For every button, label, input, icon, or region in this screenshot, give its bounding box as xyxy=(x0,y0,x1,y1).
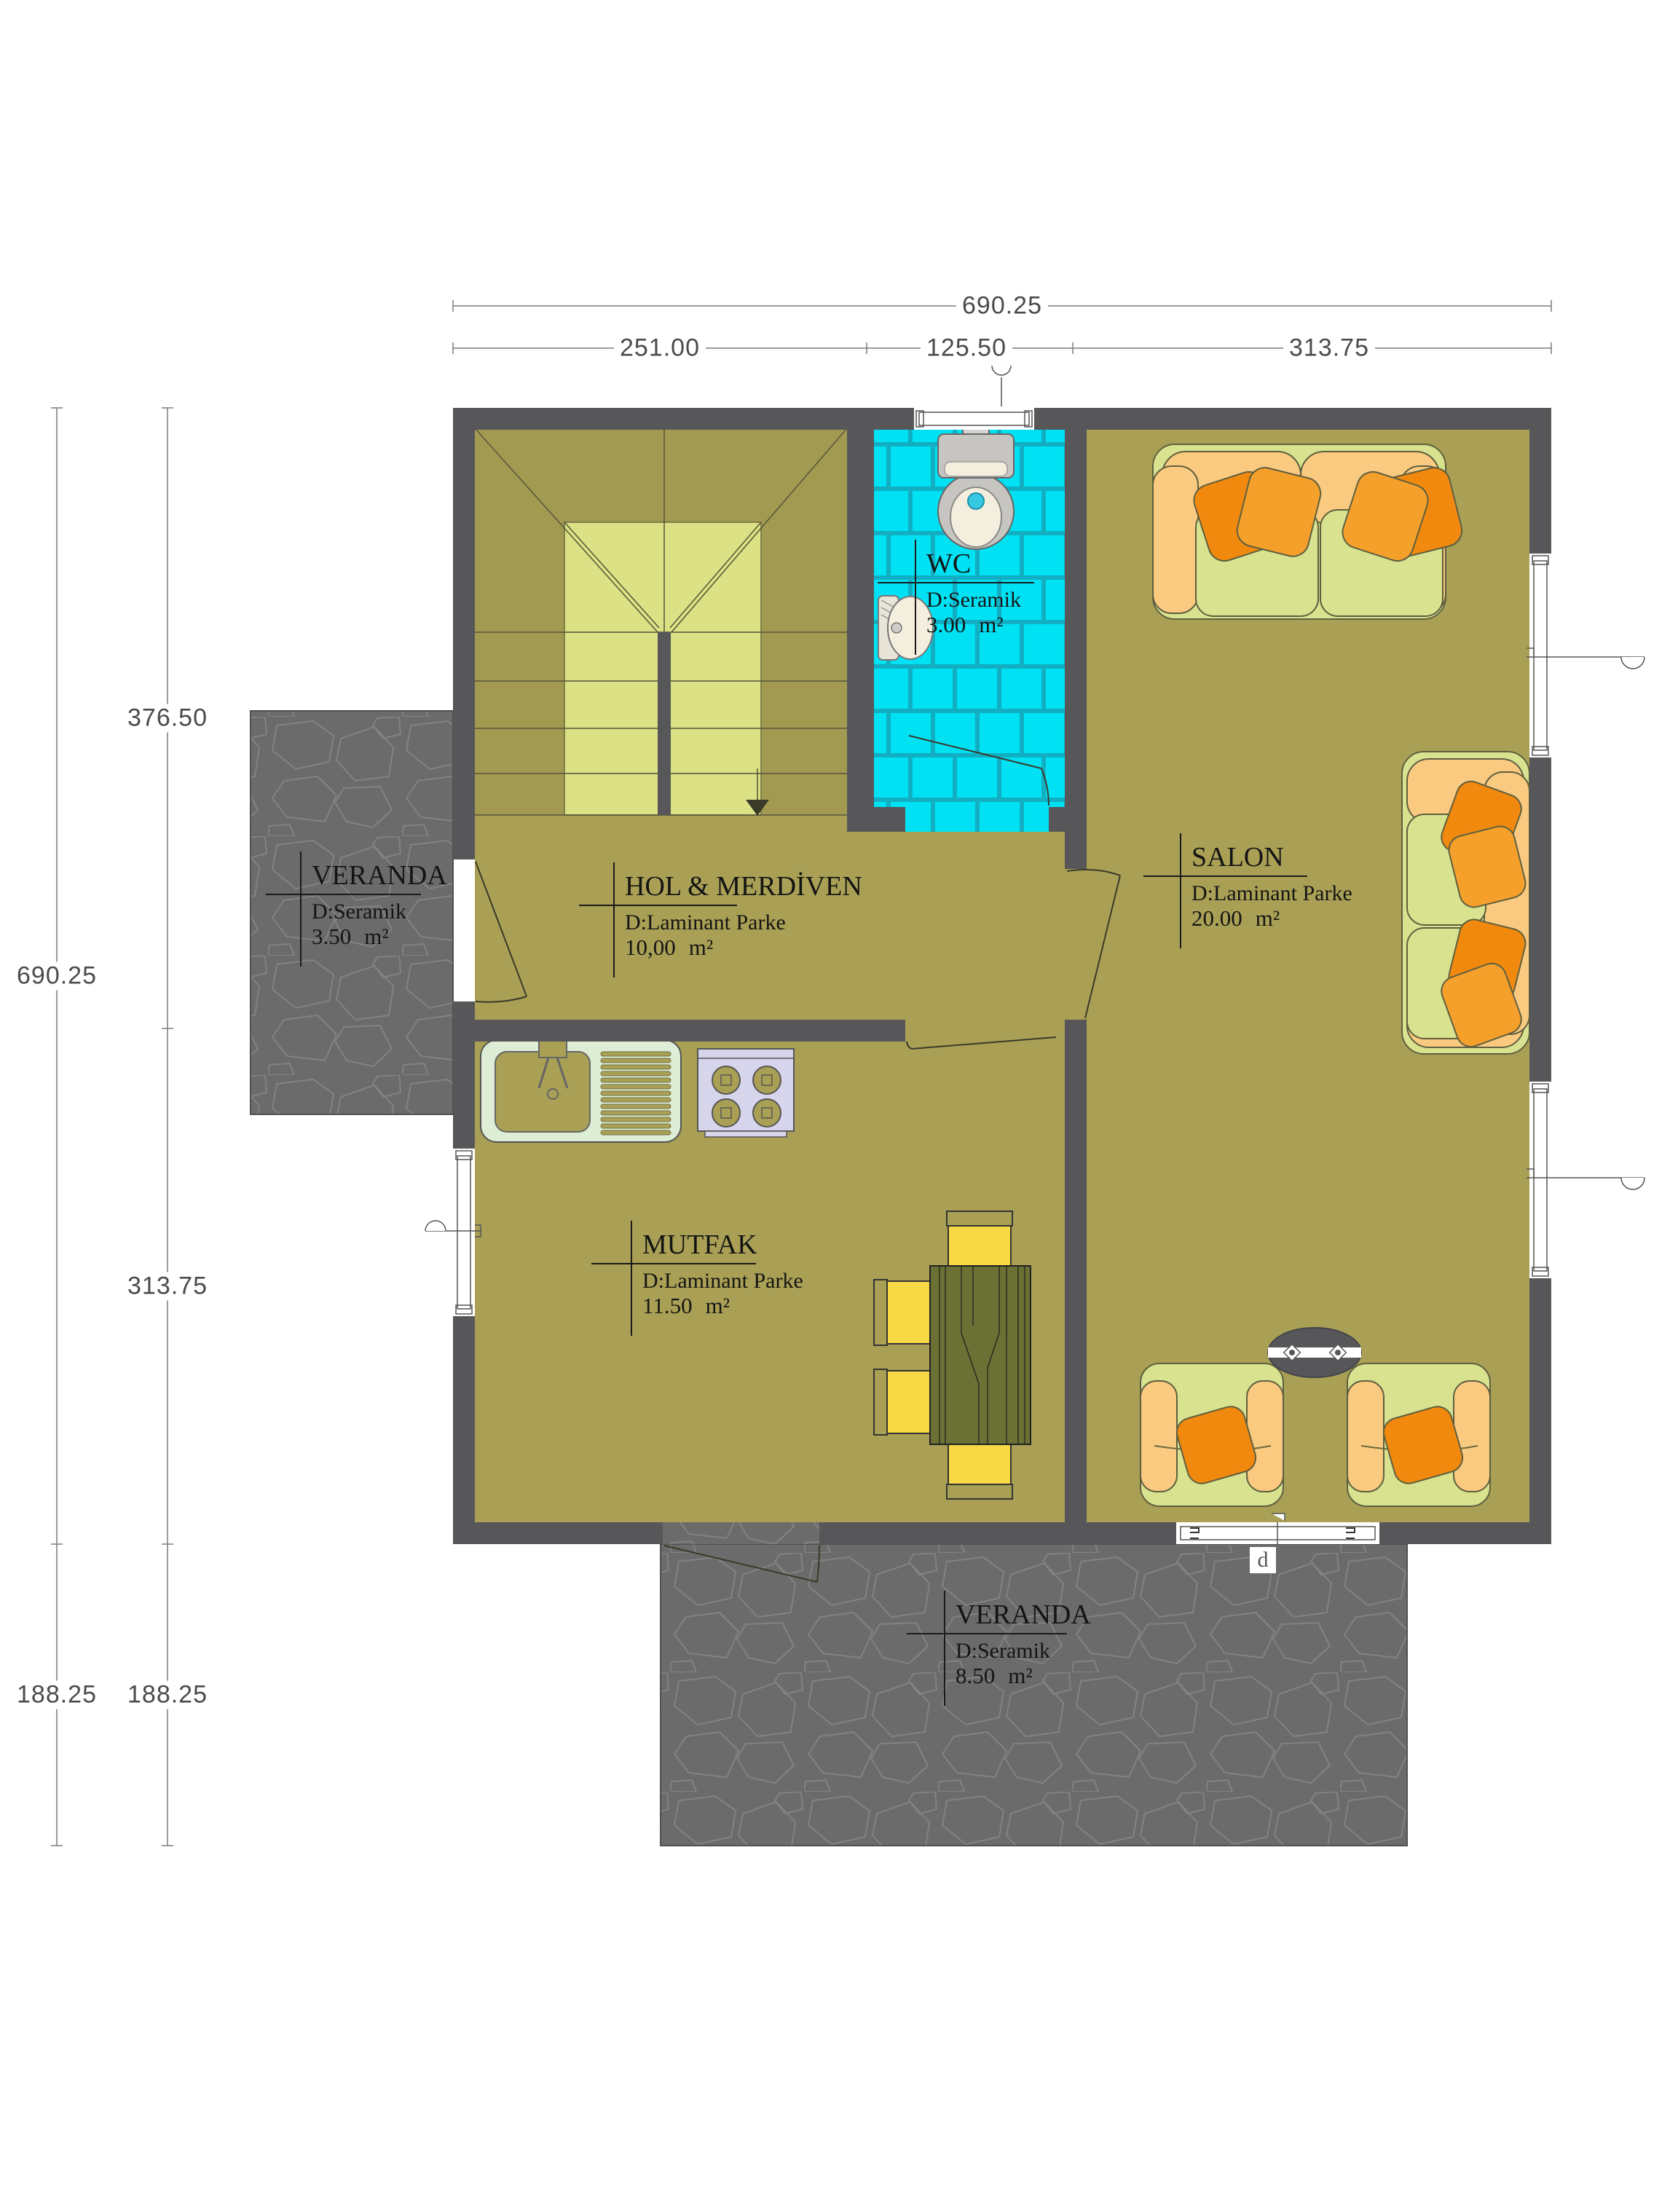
room-label-salon: SALON D:Laminant Parke 20.00m² xyxy=(1178,843,1352,932)
room-area: 10,00m² xyxy=(612,934,862,961)
room-floor-type: D:Seramik xyxy=(942,1639,1091,1663)
room-label-veranda-left: VERANDA D:Seramik 3.50m² xyxy=(299,862,447,950)
room-label-veranda-bottom: VERANDA D:Seramik 8.50m² xyxy=(942,1601,1091,1689)
armchair-symbol xyxy=(1141,1363,1283,1506)
floor-plan-drawing xyxy=(0,0,1678,2212)
door-tag: d xyxy=(1250,1547,1276,1573)
label-tick xyxy=(944,1591,945,1706)
room-area: 3.00m² xyxy=(913,612,1034,638)
room-area: 3.50m² xyxy=(299,924,447,950)
dim-top-seg-1: 251.00 xyxy=(614,334,706,363)
room-label-mutfak: MUTFAK D:Laminant Parke 11.50m² xyxy=(629,1231,803,1319)
room-name: VERANDA xyxy=(942,1601,1091,1630)
label-tick xyxy=(300,851,302,967)
staircase-symbol xyxy=(475,428,847,816)
label-tick xyxy=(915,540,916,655)
window-symbol xyxy=(425,1149,481,1316)
floor-plan-canvas: 690.25 251.00 125.50 313.75 690.25 188.2… xyxy=(0,0,1678,2212)
coffee-table-symbol xyxy=(1268,1328,1361,1377)
room-area: 8.50m² xyxy=(942,1663,1091,1689)
room-label-wc: WC D:Seramik 3.00m² xyxy=(913,550,1034,638)
dim-left-inner-3: 188.25 xyxy=(122,1681,213,1709)
stove-symbol xyxy=(698,1049,794,1137)
window-symbol xyxy=(1527,1082,1644,1278)
room-label-hol: HOL & MERDİVEN D:Laminant Parke 10,00m² xyxy=(612,873,862,961)
window-symbol xyxy=(914,366,1034,430)
window-symbol xyxy=(1527,554,1644,757)
label-tick xyxy=(631,1221,632,1336)
room-area: 20.00m² xyxy=(1178,905,1352,932)
room-floor-type: D:Laminant Parke xyxy=(612,910,862,934)
label-tick xyxy=(613,862,615,977)
room-floor-type: D:Seramik xyxy=(299,900,447,924)
dim-top-total: 690.25 xyxy=(956,292,1048,320)
sofa-right-symbol xyxy=(1402,752,1529,1054)
room-name: MUTFAK xyxy=(629,1231,803,1260)
room-name: WC xyxy=(913,550,1034,579)
room-floor-type: D:Laminant Parke xyxy=(629,1269,803,1293)
armchair-symbol xyxy=(1347,1363,1490,1506)
room-area: 11.50m² xyxy=(629,1293,803,1319)
room-name: VERANDA xyxy=(299,862,447,891)
dim-left-inner-1: 376.50 xyxy=(122,704,213,733)
dim-top-seg-2: 125.50 xyxy=(921,334,1012,363)
room-name: HOL & MERDİVEN xyxy=(612,873,862,902)
room-floor-type: D:Laminant Parke xyxy=(1178,881,1352,905)
kitchen-sink-symbol xyxy=(481,1040,681,1142)
toilet-symbol xyxy=(938,425,1014,549)
dim-left-inner-2: 313.75 xyxy=(122,1272,213,1301)
dining-table-symbol xyxy=(930,1266,1031,1444)
label-tick xyxy=(1180,833,1181,948)
room-floor-type: D:Seramik xyxy=(913,588,1034,612)
dim-top-seg-3: 313.75 xyxy=(1283,334,1375,363)
dim-left-outer-2: 188.25 xyxy=(11,1681,103,1709)
dim-left-outer-1: 690.25 xyxy=(11,962,103,991)
sofa-top-symbol xyxy=(1153,444,1465,619)
room-name: SALON xyxy=(1178,843,1352,873)
